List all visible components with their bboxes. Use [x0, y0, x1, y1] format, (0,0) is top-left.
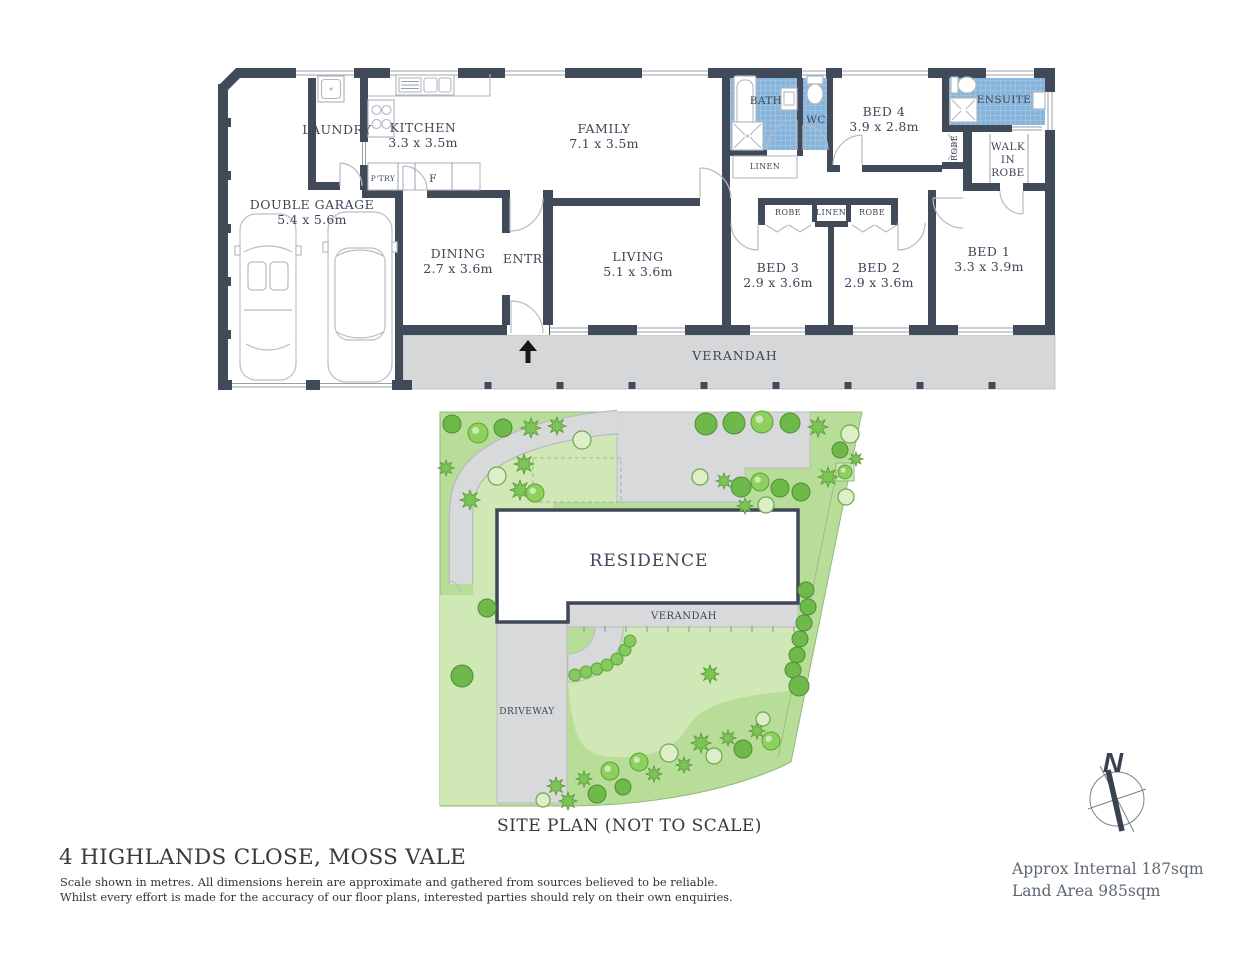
site-verandah-label: VERANDAH — [650, 611, 717, 622]
tree-icon — [758, 497, 774, 513]
bath-vanity-icon — [781, 88, 797, 110]
tree-icon — [751, 411, 773, 433]
room-dims-garage: 5.4 x 5.6m — [277, 212, 347, 227]
walk-in-robe-label: ROBE — [991, 167, 1025, 179]
tree-icon — [451, 665, 473, 687]
robe-label: ROBE — [775, 208, 801, 217]
tree-icon — [573, 431, 591, 449]
tree-icon — [460, 490, 480, 510]
site-plan: RESIDENCE VERANDAH DRIVEWAY — [438, 411, 863, 810]
site-residence — [497, 510, 798, 632]
tree-icon — [818, 467, 838, 487]
tree-icon — [789, 676, 809, 696]
tree-icon — [756, 712, 770, 726]
pantry-label: P'TRY — [371, 174, 396, 183]
tree-icon — [792, 483, 810, 501]
lawn-left — [440, 595, 497, 805]
ensuite-vanity-icon — [1033, 92, 1045, 109]
tree-icon — [706, 748, 722, 764]
tree-icon — [692, 469, 708, 485]
tree-icon — [576, 771, 592, 787]
tree-icon — [723, 412, 745, 434]
tree-icon — [468, 423, 488, 443]
tree-icon — [701, 665, 719, 683]
tree-icon — [660, 744, 678, 762]
tree-icon — [762, 732, 780, 750]
room-label-kitchen: KITCHEN — [390, 120, 457, 135]
fridge-label: F — [429, 173, 437, 185]
room-label-garage: DOUBLE GARAGE — [250, 197, 374, 212]
tree-icon — [695, 413, 717, 435]
robe-label: ROBE — [950, 135, 959, 161]
linen-label: LINEN — [750, 162, 780, 171]
room-label-bed2: BED 2 — [858, 260, 901, 275]
ensuite-toilet-icon — [951, 77, 976, 93]
wc-toilet-icon — [807, 76, 823, 104]
room-label-bed3: BED 3 — [757, 260, 800, 275]
tree-icon — [720, 730, 736, 746]
tree-icon — [751, 473, 769, 491]
walk-in-robe-label: WALK — [991, 141, 1025, 153]
tree-icon — [796, 615, 812, 631]
tree-icon — [615, 779, 631, 795]
tree-icon — [536, 793, 550, 807]
tree-icon — [716, 473, 732, 489]
tree-icon — [438, 460, 454, 476]
north-compass-icon: N — [1088, 747, 1146, 832]
tree-icon — [792, 631, 808, 647]
tree-icon — [547, 777, 565, 795]
tree-icon — [478, 599, 496, 617]
room-dims-living: 5.1 x 3.6m — [603, 264, 673, 279]
address-title: 4 HIGHLANDS CLOSE, MOSS VALE — [59, 845, 466, 870]
room-dims-dining: 2.7 x 3.6m — [423, 261, 493, 276]
laundry-tub-icon — [318, 76, 344, 102]
disclaimer: Scale shown in metres. All dimensions he… — [60, 875, 733, 904]
tree-icon — [841, 425, 859, 443]
bush-icon — [624, 635, 636, 647]
room-dims-bed3: 2.9 x 3.6m — [743, 275, 813, 290]
tree-icon — [731, 477, 751, 497]
room-label-wc: WC — [806, 114, 826, 126]
tree-icon — [514, 454, 534, 474]
ensuite-shower-icon — [950, 98, 977, 122]
walk-in-robe-label: IN — [1001, 154, 1015, 166]
room-label-verandah: VERANDAH — [691, 348, 777, 363]
bath-shower-icon — [732, 122, 763, 150]
floorplan-page: LAUNDRY KITCHEN 3.3 x 3.5m FAMILY 7.1 x … — [0, 0, 1242, 960]
room-dims-bed1: 3.3 x 3.9m — [954, 259, 1024, 274]
tree-icon — [838, 465, 852, 479]
room-label-dining: DINING — [431, 246, 486, 261]
tree-icon — [601, 762, 619, 780]
tree-icon — [548, 417, 566, 435]
tree-icon — [630, 753, 648, 771]
room-label-bath: BATH — [750, 95, 783, 107]
tree-icon — [771, 479, 789, 497]
tree-icon — [734, 740, 752, 758]
area-internal: Approx Internal 187sqm — [1012, 858, 1204, 880]
area-summary: Approx Internal 187sqm Land Area 985sqm — [1012, 858, 1204, 902]
tree-icon — [832, 442, 848, 458]
door-arcs — [340, 120, 1042, 333]
tree-icon — [488, 467, 506, 485]
north-label: N — [1103, 747, 1124, 778]
robe-label: ROBE — [859, 208, 885, 217]
tree-icon — [849, 452, 863, 466]
room-label-bed4: BED 4 — [863, 104, 906, 119]
room-label-living: LIVING — [612, 249, 663, 264]
bush-icon — [580, 666, 592, 678]
driveway-label: DRIVEWAY — [499, 707, 555, 717]
room-dims-kitchen: 3.3 x 3.5m — [388, 135, 458, 150]
car-icon — [323, 212, 397, 382]
tree-icon — [521, 418, 541, 438]
residence-label: RESIDENCE — [590, 551, 709, 571]
room-label-entry: ENTRY — [503, 251, 551, 266]
tree-icon — [808, 417, 828, 437]
room-dims-bed4: 3.9 x 2.8m — [849, 119, 919, 134]
linen-label: LINEN — [816, 208, 846, 217]
tree-icon — [646, 766, 662, 782]
tree-icon — [737, 498, 753, 514]
disclaimer-line1: Scale shown in metres. All dimensions he… — [60, 875, 733, 890]
room-label-family: FAMILY — [577, 121, 630, 136]
tree-icon — [676, 757, 692, 773]
tree-icon — [443, 415, 461, 433]
room-dims-family: 7.1 x 3.5m — [569, 136, 639, 151]
tree-icon — [526, 484, 544, 502]
tree-icon — [838, 489, 854, 505]
disclaimer-line2: Whilst every effort is made for the accu… — [60, 890, 733, 905]
tree-icon — [800, 599, 816, 615]
site-plan-caption: SITE PLAN (NOT TO SCALE) — [497, 816, 737, 836]
room-label-ensuite: ENSUITE — [977, 94, 1032, 106]
floor-plan: LAUNDRY KITCHEN 3.3 x 3.5m FAMILY 7.1 x … — [218, 68, 1055, 390]
tree-icon — [798, 582, 814, 598]
tree-icon — [559, 792, 577, 810]
tree-icon — [494, 419, 512, 437]
tree-icon — [588, 785, 606, 803]
tree-icon — [789, 647, 805, 663]
tree-icon — [780, 413, 800, 433]
bush-icon — [569, 669, 581, 681]
room-label-bed1: BED 1 — [968, 244, 1011, 259]
room-dims-bed2: 2.9 x 3.6m — [844, 275, 914, 290]
area-land: Land Area 985sqm — [1012, 880, 1204, 902]
car-icon — [235, 214, 301, 380]
room-label-laundry: LAUNDRY — [302, 122, 372, 137]
